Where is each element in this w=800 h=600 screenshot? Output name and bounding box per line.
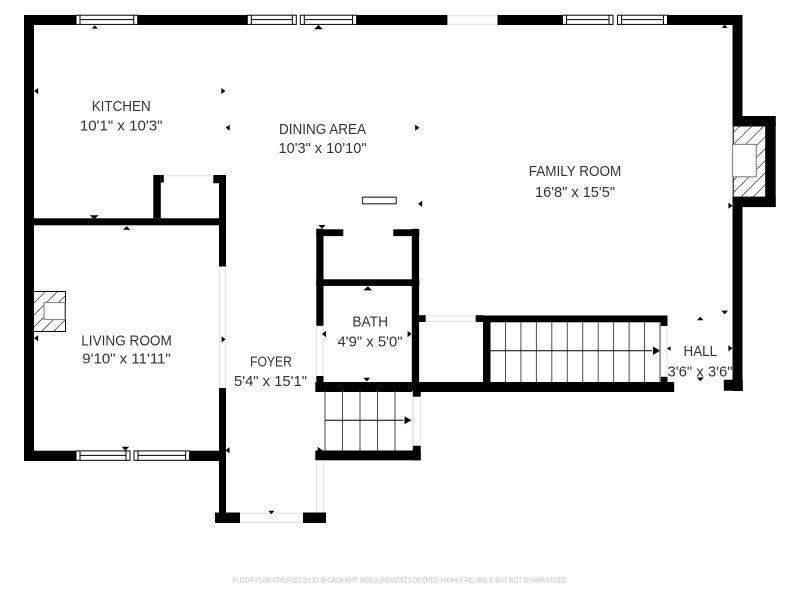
svg-text:FAMILY ROOM: FAMILY ROOM	[529, 163, 622, 180]
svg-text:10'1" x 10'3": 10'1" x 10'3"	[80, 118, 163, 135]
svg-text:3'6" x 3'6": 3'6" x 3'6"	[668, 364, 733, 381]
svg-text:LIVING ROOM: LIVING ROOM	[81, 333, 172, 350]
svg-text:FOYER: FOYER	[250, 354, 292, 371]
svg-text:4'9" x 5'0": 4'9" x 5'0"	[338, 333, 403, 350]
svg-text:9'10" x 11'11": 9'10" x 11'11"	[82, 351, 171, 368]
svg-text:5'4" x 15'1": 5'4" x 15'1"	[234, 373, 307, 390]
svg-text:16'8" x 15'5": 16'8" x 15'5"	[535, 184, 615, 201]
svg-text:BATH: BATH	[352, 314, 388, 331]
svg-text:FLOOR PLAN CREATED BY CUBICASA: FLOOR PLAN CREATED BY CUBICASA APP. MEAS…	[233, 575, 568, 584]
svg-text:DINING AREA: DINING AREA	[279, 121, 366, 138]
svg-text:KITCHEN: KITCHEN	[92, 98, 151, 115]
svg-text:HALL: HALL	[684, 343, 718, 360]
svg-text:10'3" x 10'10": 10'3" x 10'10"	[279, 140, 367, 157]
